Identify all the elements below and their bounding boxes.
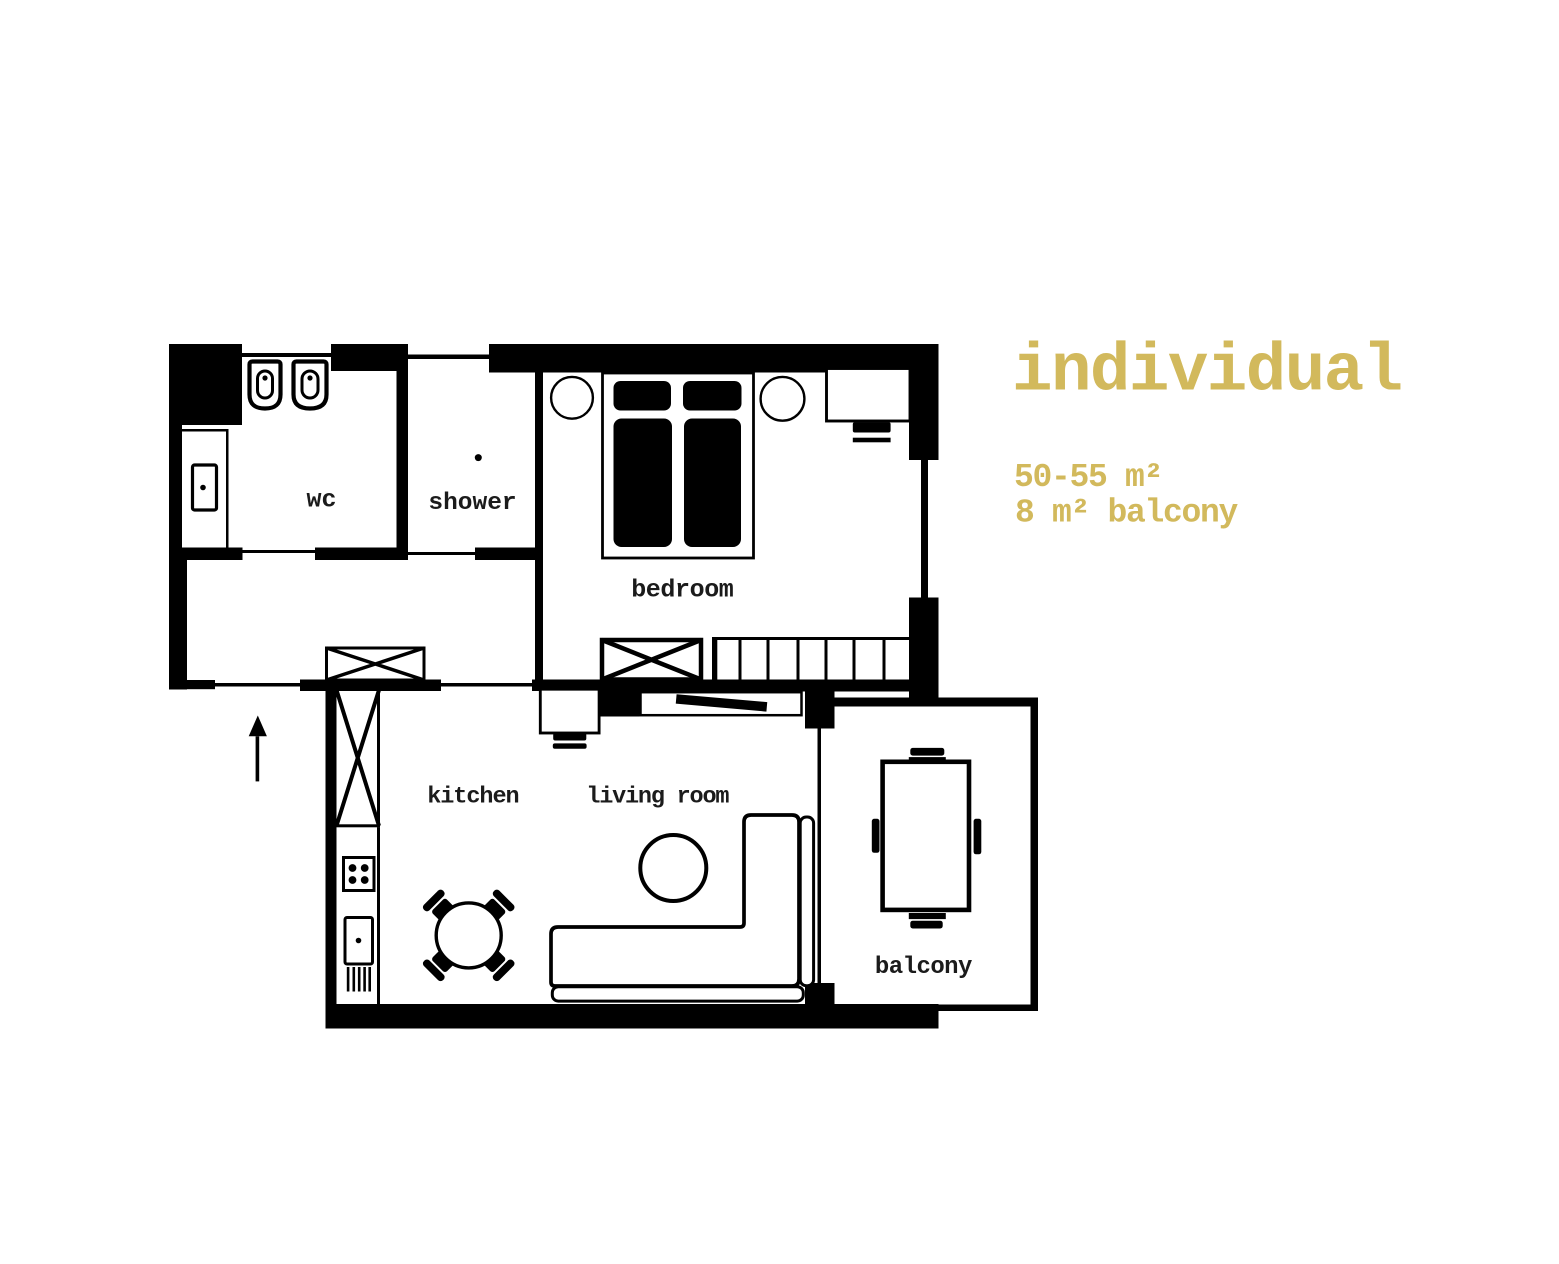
svg-text:wc: wc bbox=[306, 486, 336, 515]
svg-text:shower: shower bbox=[428, 490, 516, 517]
svg-text:50-55 m²: 50-55 m² bbox=[1014, 459, 1162, 496]
svg-text:balcony: balcony bbox=[875, 954, 972, 981]
svg-text:living room: living room bbox=[586, 784, 729, 811]
svg-text:individual: individual bbox=[1012, 335, 1402, 411]
svg-text:8 m² balcony: 8 m² balcony bbox=[1015, 495, 1239, 532]
svg-text:kitchen: kitchen bbox=[427, 784, 518, 811]
svg-text:bedroom: bedroom bbox=[631, 575, 734, 604]
